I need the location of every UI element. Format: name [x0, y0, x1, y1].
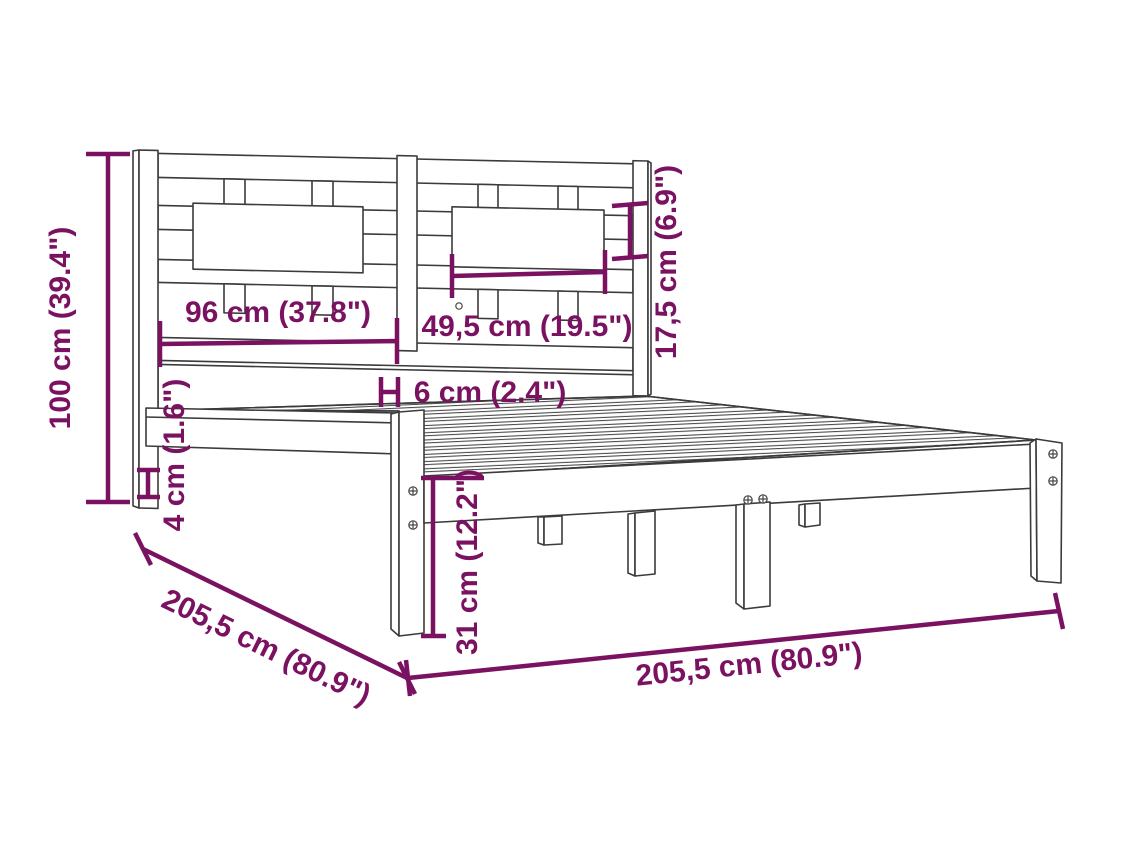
- support-leg-side: [538, 517, 544, 545]
- screw-icon: [1049, 477, 1057, 485]
- support-leg: [635, 511, 655, 576]
- screw-icon: [409, 487, 417, 495]
- bed-base: [146, 396, 1062, 636]
- headboard-left-edge: [133, 150, 139, 508]
- label-panel-height: 17,5 cm (6.9"): [650, 165, 683, 359]
- support-leg: [805, 503, 820, 527]
- headboard-panel-left: [193, 203, 363, 273]
- screw-icon: [744, 496, 752, 504]
- screw-icon: [456, 303, 462, 309]
- label-total-height: 100 cm (39.4"): [44, 227, 77, 430]
- support-leg-side: [628, 513, 635, 576]
- diagram-canvas: 100 cm (39.4") 96 cm (37.8") 49,5 cm (19…: [0, 0, 1132, 849]
- label-rail-lip: 4 cm (1.6"): [158, 379, 191, 532]
- support-leg: [544, 516, 562, 545]
- bed-frame-dimension-diagram: 100 cm (39.4") 96 cm (37.8") 49,5 cm (19…: [0, 0, 1132, 849]
- leg-front-centre-side: [736, 504, 744, 609]
- screw-icon: [409, 521, 417, 529]
- label-panel-width: 49,5 cm (19.5"): [421, 310, 632, 343]
- label-headboard-section-width: 96 cm (37.8"): [185, 296, 371, 329]
- support-leg-side: [799, 504, 805, 527]
- label-slat-width: 6 cm (2.4"): [414, 376, 567, 409]
- dimension-total-height: [86, 154, 130, 502]
- screw-icon: [1049, 450, 1057, 458]
- headboard-panel-right: [452, 207, 604, 270]
- headboard-divider: [397, 156, 417, 351]
- leg-front-centre: [744, 502, 770, 609]
- label-base-height: 31 cm (12.2"): [451, 469, 484, 655]
- leg-front-left-side: [391, 412, 399, 636]
- headboard-connector: [312, 181, 333, 209]
- headboard-connector: [224, 179, 245, 207]
- headboard-right-stile: [633, 161, 648, 396]
- leg-right: [1036, 439, 1062, 583]
- screw-icon: [759, 495, 767, 503]
- headboard-left-stile: [139, 150, 158, 508]
